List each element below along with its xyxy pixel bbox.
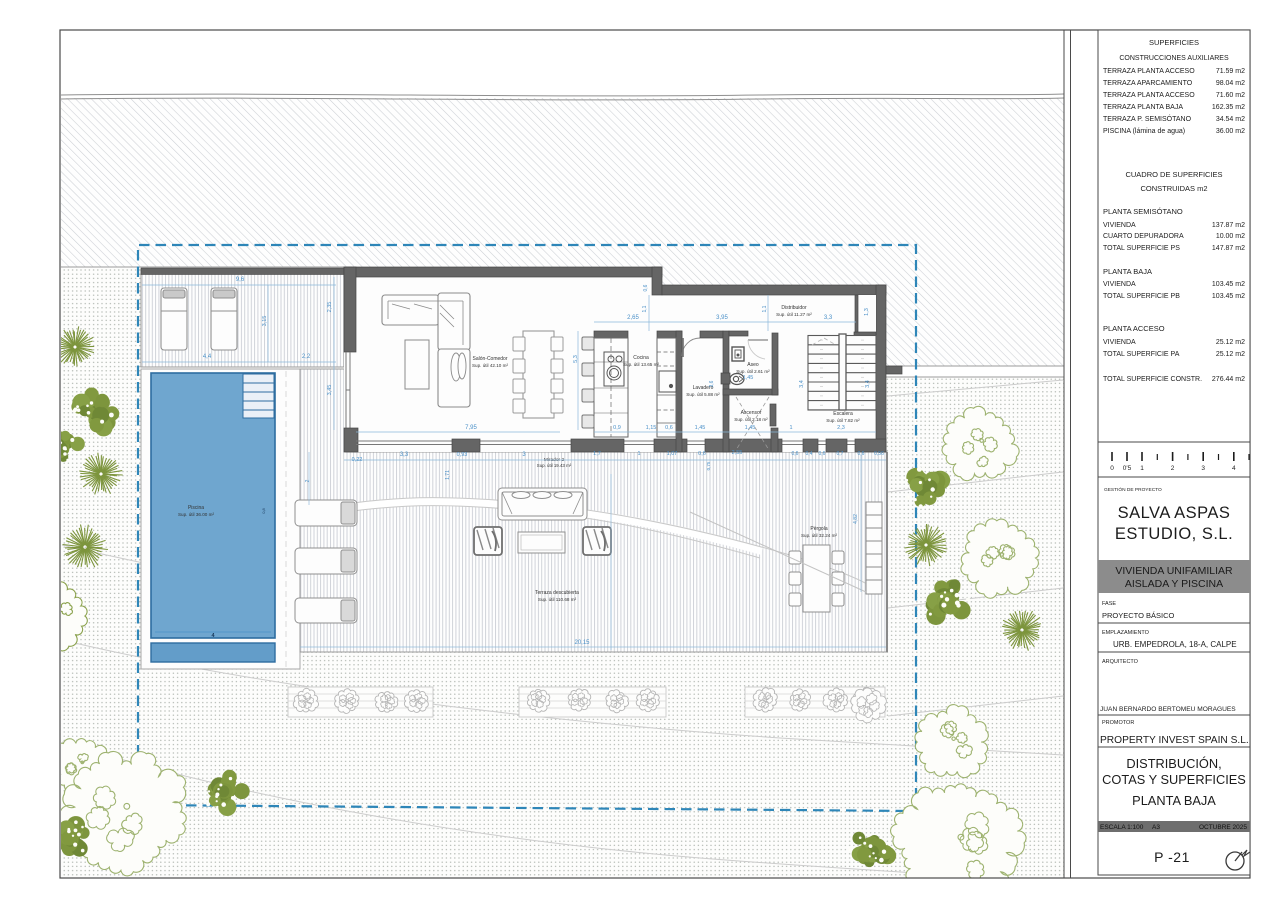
svg-text:1,3: 1,3 — [864, 308, 870, 316]
svg-text:SUPERFICIES: SUPERFICIES — [1149, 38, 1199, 47]
svg-text:Sup. útil 2.18 m²: Sup. útil 2.18 m² — [734, 417, 768, 422]
svg-text:1,45: 1,45 — [695, 425, 706, 431]
svg-text:0,7: 0,7 — [837, 451, 844, 457]
svg-text:2,3: 2,3 — [837, 425, 845, 431]
svg-text:DISTRIBUCIÓN,: DISTRIBUCIÓN, — [1126, 756, 1221, 771]
svg-text:0,8: 0,8 — [261, 507, 266, 513]
svg-text:2,55: 2,55 — [732, 450, 743, 456]
svg-text:2: 2 — [1171, 465, 1175, 472]
svg-text:CUARTO DEPURADORA: CUARTO DEPURADORA — [1103, 233, 1184, 240]
svg-text:Sup. útil 110.68 m²: Sup. útil 110.68 m² — [538, 597, 577, 602]
svg-text:PROMOTOR: PROMOTOR — [1102, 720, 1134, 726]
svg-text:36.00 m2: 36.00 m2 — [1216, 128, 1245, 135]
svg-text:TERRAZA P. SEMISÓTANO: TERRAZA P. SEMISÓTANO — [1103, 114, 1192, 123]
svg-text:3,4: 3,4 — [799, 380, 805, 388]
svg-text:25.12 m2: 25.12 m2 — [1216, 339, 1245, 346]
svg-text:137.87 m2: 137.87 m2 — [1212, 222, 1245, 229]
svg-text:TERRAZA APARCAMIENTO: TERRAZA APARCAMIENTO — [1103, 80, 1193, 87]
svg-text:CONSTRUIDAS m2: CONSTRUIDAS m2 — [1140, 184, 1207, 193]
svg-text:VIVIENDA: VIVIENDA — [1103, 222, 1136, 229]
svg-text:Cocina: Cocina — [633, 355, 649, 361]
svg-text:Escalera: Escalera — [833, 411, 853, 417]
svg-text:COTAS Y SUPERFICIES: COTAS Y SUPERFICIES — [1102, 772, 1246, 787]
svg-text:Sup. útil 13.65 m²: Sup. útil 13.65 m² — [623, 362, 659, 367]
svg-text:7,95: 7,95 — [465, 425, 477, 431]
svg-text:0,6: 0,6 — [643, 284, 649, 291]
svg-text:1: 1 — [637, 451, 640, 457]
svg-text:TOTAL SUPERFICIE PS: TOTAL SUPERFICIE PS — [1103, 245, 1180, 252]
svg-text:1,1: 1,1 — [762, 305, 768, 312]
svg-text:Sup. útil 2.61 m²: Sup. útil 2.61 m² — [736, 369, 770, 374]
svg-text:Distribuidor: Distribuidor — [781, 305, 807, 311]
svg-text:1,45: 1,45 — [743, 375, 754, 381]
svg-text:VIVIENDA: VIVIENDA — [1103, 339, 1136, 346]
svg-text:71.59 m2: 71.59 m2 — [1216, 68, 1245, 75]
svg-text:0,9: 0,9 — [613, 425, 621, 431]
svg-text:Piscina: Piscina — [188, 505, 204, 511]
svg-text:10.00 m2: 10.00 m2 — [1216, 233, 1245, 240]
svg-text:FASE: FASE — [1102, 601, 1116, 607]
svg-text:PISCINA (lámina de agua): PISCINA (lámina de agua) — [1103, 128, 1185, 135]
svg-text:TOTAL SUPERFICIE PA: TOTAL SUPERFICIE PA — [1103, 351, 1180, 358]
svg-text:1: 1 — [789, 425, 792, 431]
svg-text:Ascensor: Ascensor — [741, 410, 762, 416]
svg-text:Sup. útil 36.00 m²: Sup. útil 36.00 m² — [178, 512, 214, 517]
svg-text:25.12 m2: 25.12 m2 — [1216, 351, 1245, 358]
svg-text:1: 1 — [1140, 465, 1144, 472]
svg-text:0,6: 0,6 — [858, 451, 865, 457]
svg-text:0,22: 0,22 — [352, 457, 363, 463]
svg-text:Sup. útil 19.43 m²: Sup. útil 19.43 m² — [537, 463, 572, 468]
svg-text:1,45: 1,45 — [745, 425, 756, 431]
svg-text:Sup. útil 7.82 m²: Sup. útil 7.82 m² — [826, 418, 860, 423]
svg-text:CUADRO DE SUPERFICIES: CUADRO DE SUPERFICIES — [1125, 170, 1222, 179]
svg-text:9,6: 9,6 — [236, 277, 245, 283]
svg-text:1,71: 1,71 — [445, 470, 451, 480]
svg-text:VIVIENDA: VIVIENDA — [1103, 281, 1136, 288]
svg-text:4,82: 4,82 — [853, 514, 859, 524]
svg-text:2,2: 2,2 — [302, 354, 311, 360]
svg-text:URB. EMPEDROLA, 18-A, CALPE: URB. EMPEDROLA, 18-A, CALPE — [1113, 640, 1237, 649]
svg-text:Sup. útil 42.10 m²: Sup. útil 42.10 m² — [472, 363, 508, 368]
svg-text:3,4: 3,4 — [865, 380, 871, 388]
svg-text:PLANTA BAJA: PLANTA BAJA — [1103, 267, 1152, 276]
svg-text:276.44 m2: 276.44 m2 — [1212, 376, 1245, 383]
svg-text:147.87 m2: 147.87 m2 — [1212, 245, 1245, 252]
svg-text:0: 0 — [1110, 465, 1114, 472]
svg-text:Aseo: Aseo — [747, 362, 759, 368]
svg-text:PLANTA BAJA: PLANTA BAJA — [1132, 793, 1216, 808]
svg-text:ARQUITECTO: ARQUITECTO — [1102, 659, 1139, 665]
svg-text:5,3: 5,3 — [573, 355, 579, 363]
svg-text:TERRAZA PLANTA BAJA: TERRAZA PLANTA BAJA — [1103, 104, 1183, 111]
svg-text:VIVIENDA UNIFAMILIAR: VIVIENDA UNIFAMILIAR — [1115, 565, 1233, 577]
svg-text:1,1: 1,1 — [642, 305, 648, 312]
svg-text:PLANTA SEMISÓTANO: PLANTA SEMISÓTANO — [1103, 207, 1183, 216]
svg-text:TERRAZA PLANTA ACCESO: TERRAZA PLANTA ACCESO — [1103, 92, 1195, 99]
svg-text:0,6: 0,6 — [792, 451, 799, 457]
svg-text:162.35 m2: 162.35 m2 — [1212, 104, 1245, 111]
svg-text:ESTUDIO, S.L.: ESTUDIO, S.L. — [1115, 525, 1233, 543]
svg-text:0,56: 0,56 — [874, 451, 884, 457]
svg-text:OCTUBRE 2025: OCTUBRE 2025 — [1199, 824, 1247, 831]
svg-text:0'5: 0'5 — [1123, 465, 1132, 472]
svg-text:2,65: 2,65 — [627, 315, 639, 321]
svg-text:3,95: 3,95 — [716, 315, 728, 321]
svg-text:GESTIÓN DE PROYECTO: GESTIÓN DE PROYECTO — [1104, 486, 1162, 493]
svg-text:2,35: 2,35 — [327, 302, 333, 313]
svg-text:2: 2 — [305, 479, 311, 482]
svg-text:Sup. útil 32.24 m²: Sup. útil 32.24 m² — [801, 533, 837, 538]
svg-text:3,3: 3,3 — [400, 452, 409, 458]
svg-text:34.54 m2: 34.54 m2 — [1216, 116, 1245, 123]
svg-text:98.04 m2: 98.04 m2 — [1216, 80, 1245, 87]
svg-text:TOTAL SUPERFICIE CONSTR.: TOTAL SUPERFICIE CONSTR. — [1103, 376, 1202, 383]
svg-text:Terraza descubierta: Terraza descubierta — [535, 590, 579, 596]
svg-text:3,6: 3,6 — [709, 380, 715, 387]
svg-text:Pèrgola: Pèrgola — [810, 526, 827, 532]
svg-text:AISLADA Y PISCINA: AISLADA Y PISCINA — [1125, 578, 1223, 590]
svg-text:TERRAZA PLANTA ACCESO: TERRAZA PLANTA ACCESO — [1103, 68, 1195, 75]
svg-text:3,15: 3,15 — [262, 316, 268, 327]
svg-text:A3: A3 — [1152, 824, 1160, 831]
svg-text:103.45 m2: 103.45 m2 — [1212, 281, 1245, 288]
svg-text:4,4: 4,4 — [203, 354, 212, 360]
svg-text:ESCALA 1:100: ESCALA 1:100 — [1100, 824, 1144, 831]
svg-text:Salón-Comedor: Salón-Comedor — [472, 356, 507, 362]
svg-text:P -21: P -21 — [1154, 849, 1190, 865]
svg-text:103.45 m2: 103.45 m2 — [1212, 293, 1245, 300]
svg-text:Sup. útil 5.88 m²: Sup. útil 5.88 m² — [686, 392, 720, 397]
svg-text:0,93: 0,93 — [457, 452, 468, 458]
svg-text:71.60 m2: 71.60 m2 — [1216, 92, 1245, 99]
svg-text:4: 4 — [1232, 465, 1236, 472]
svg-text:0,4: 0,4 — [806, 451, 813, 457]
svg-text:EMPLAZAMIENTO: EMPLAZAMIENTO — [1102, 630, 1150, 636]
svg-text:JUAN BERNARDO BERTOMEU MORAGUE: JUAN BERNARDO BERTOMEU MORAGUES — [1100, 706, 1236, 713]
svg-text:Sup. útil 11.27 m²: Sup. útil 11.27 m² — [776, 312, 812, 317]
svg-text:1,15: 1,15 — [646, 425, 657, 431]
svg-text:SALVA ASPAS: SALVA ASPAS — [1118, 504, 1231, 522]
svg-text:0,6: 0,6 — [819, 451, 826, 457]
svg-text:1,7: 1,7 — [593, 451, 601, 457]
svg-text:3,3: 3,3 — [824, 315, 833, 321]
svg-text:PLANTA ACCESO: PLANTA ACCESO — [1103, 324, 1165, 333]
svg-text:PROYECTO BÁSICO: PROYECTO BÁSICO — [1102, 611, 1175, 620]
svg-text:0,6: 0,6 — [665, 425, 673, 431]
svg-text:PROPERTY INVEST SPAIN S.L.: PROPERTY INVEST SPAIN S.L. — [1100, 735, 1249, 746]
svg-text:0,6: 0,6 — [698, 451, 706, 457]
svg-text:TOTAL SUPERFICIE PB: TOTAL SUPERFICIE PB — [1103, 293, 1180, 300]
svg-text:3: 3 — [1201, 465, 1205, 472]
svg-text:1,07: 1,07 — [667, 451, 678, 457]
svg-text:CONSTRUCCIONES AUXILIARES: CONSTRUCCIONES AUXILIARES — [1119, 55, 1229, 62]
svg-text:3,45: 3,45 — [327, 385, 333, 396]
svg-text:0,75: 0,75 — [706, 461, 711, 470]
svg-text:20,15: 20,15 — [574, 640, 590, 646]
